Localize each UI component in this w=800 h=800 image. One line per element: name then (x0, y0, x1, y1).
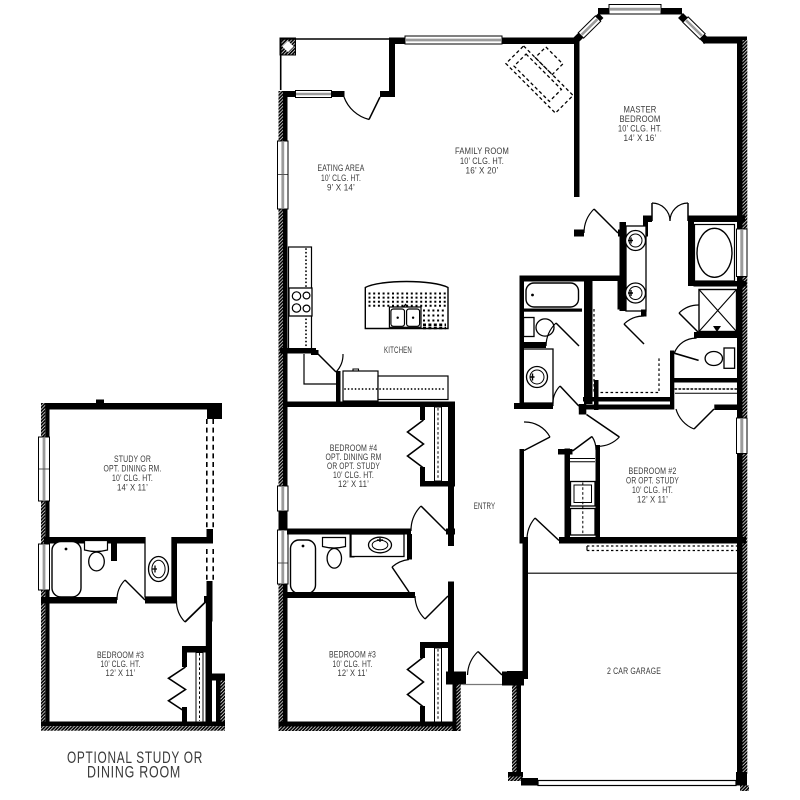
svg-text:10’ CLG. HT.: 10’ CLG. HT. (321, 173, 361, 183)
svg-text:EATING AREA: EATING AREA (318, 163, 365, 173)
svg-text:2 CAR GARAGE: 2 CAR GARAGE (607, 666, 661, 676)
svg-text:12’ X 11’: 12’ X 11’ (637, 495, 668, 505)
svg-text:OR OPT. STUDY: OR OPT. STUDY (626, 476, 679, 486)
svg-text:12’ X 11’: 12’ X 11’ (338, 668, 368, 678)
svg-text:STUDY OR: STUDY OR (114, 454, 151, 464)
svg-text:9’ X 14’: 9’ X 14’ (327, 183, 355, 193)
svg-text:14’ X 11’: 14’ X 11’ (117, 483, 148, 493)
svg-text:KITCHEN: KITCHEN (384, 345, 412, 355)
svg-text:16’ X 20’: 16’ X 20’ (466, 166, 499, 176)
svg-text:10’ CLG. HT.: 10’ CLG. HT. (460, 156, 504, 166)
svg-text:14’ X 16’: 14’ X 16’ (624, 133, 657, 143)
svg-text:10’ CLG. HT.: 10’ CLG. HT. (632, 485, 673, 495)
svg-text:12’ X 11’: 12’ X 11’ (106, 668, 136, 678)
svg-text:DINING ROOM: DINING ROOM (87, 764, 181, 782)
svg-text:FAMILY ROOM: FAMILY ROOM (455, 146, 509, 156)
svg-text:BEDROOM #3: BEDROOM #3 (329, 650, 376, 660)
svg-text:MASTER: MASTER (624, 105, 657, 115)
svg-text:OPT. DINING RM.: OPT. DINING RM. (104, 464, 162, 474)
svg-text:12’ X 11’: 12’ X 11’ (338, 479, 369, 489)
svg-text:ENTRY: ENTRY (474, 501, 496, 511)
svg-text:BEDROOM: BEDROOM (620, 114, 661, 124)
svg-text:BEDROOM #2: BEDROOM #2 (629, 466, 677, 476)
svg-text:10’ CLG. HT.: 10’ CLG. HT. (618, 124, 662, 134)
svg-text:10’ CLG. HT.: 10’ CLG. HT. (112, 473, 153, 483)
